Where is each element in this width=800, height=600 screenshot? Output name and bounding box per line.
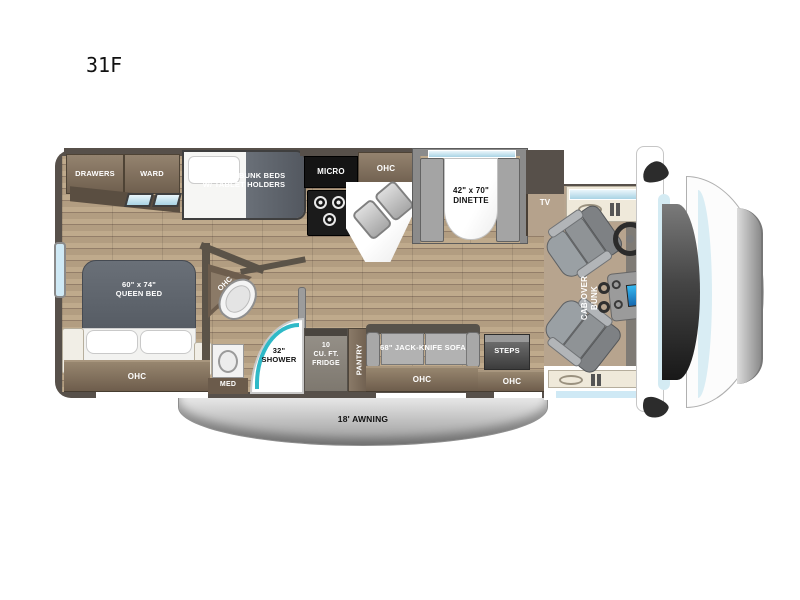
queen-bed-label: 60" x 74" QUEEN BED xyxy=(84,280,194,299)
dinette-bench-right xyxy=(496,158,520,242)
med-cabinet xyxy=(212,344,244,378)
door-hinge xyxy=(610,203,614,216)
sofa-label: 68" JACK-KNIFE SOFA xyxy=(368,343,478,352)
bed-ohc: OHC xyxy=(64,360,210,392)
dinette-bench-left xyxy=(420,158,444,242)
ward-label: WARD xyxy=(140,169,164,178)
model-title: 31F xyxy=(86,53,122,77)
awning-label: 18' AWNING xyxy=(258,414,468,425)
bunk-label: 28" x 72" BUNK BEDS W/ TABLET HOLDERS xyxy=(184,171,304,190)
door-hinge xyxy=(597,374,601,386)
kitchen-ohc-label: OHC xyxy=(377,164,395,174)
front-grille xyxy=(737,208,763,384)
slide-marker xyxy=(96,392,208,398)
driver-door-window xyxy=(569,189,637,200)
fridge-label: 10 CU. FT. FRIDGE xyxy=(304,342,348,368)
pillow xyxy=(86,330,138,354)
cab-over-bunk-label: CAB-OVER BUNK xyxy=(580,263,600,333)
wardrobe-cabinet: WARD xyxy=(124,154,180,194)
slide-marker xyxy=(376,393,466,398)
pantry-label: PANTRY xyxy=(354,330,363,390)
entry-door xyxy=(548,370,640,388)
cooktop xyxy=(307,190,351,236)
shower-label: 32" SHOWER xyxy=(256,346,302,365)
rear-window xyxy=(54,242,66,298)
sofa-ohc-label: OHC xyxy=(413,375,431,385)
door-hinge xyxy=(616,203,620,216)
kitchen-ohc: OHC xyxy=(358,152,414,186)
pillow xyxy=(140,330,192,354)
steps-label: STEPS xyxy=(484,346,530,355)
floorplan-diagram: 31F 18' AWNING DRAWERS WARD 28" x 72" BU… xyxy=(0,0,800,600)
steps-ohc-label: OHC xyxy=(503,377,521,387)
micro-label: MICRO xyxy=(317,167,345,177)
steps-ohc: OHC xyxy=(478,370,546,392)
dinette-label: 42" x 70" DINETTE xyxy=(444,186,498,206)
slide-marker xyxy=(494,392,542,398)
bath-sink xyxy=(218,350,238,373)
window xyxy=(124,193,154,207)
drawers-label: DRAWERS xyxy=(75,169,115,178)
door-handle xyxy=(559,375,583,385)
med-label: MED xyxy=(208,381,248,390)
dinette-window xyxy=(428,150,516,158)
entry-step-glass xyxy=(554,389,642,400)
tv-label: TV xyxy=(526,198,564,208)
side-mirror-bottom xyxy=(640,394,671,421)
window xyxy=(152,193,182,207)
driver-door-exterior xyxy=(564,148,640,184)
sofa-ohc: OHC xyxy=(366,366,478,392)
tv-wall-upper xyxy=(526,150,564,196)
door-hinge xyxy=(591,374,595,386)
bed-ohc-label: OHC xyxy=(128,372,146,382)
